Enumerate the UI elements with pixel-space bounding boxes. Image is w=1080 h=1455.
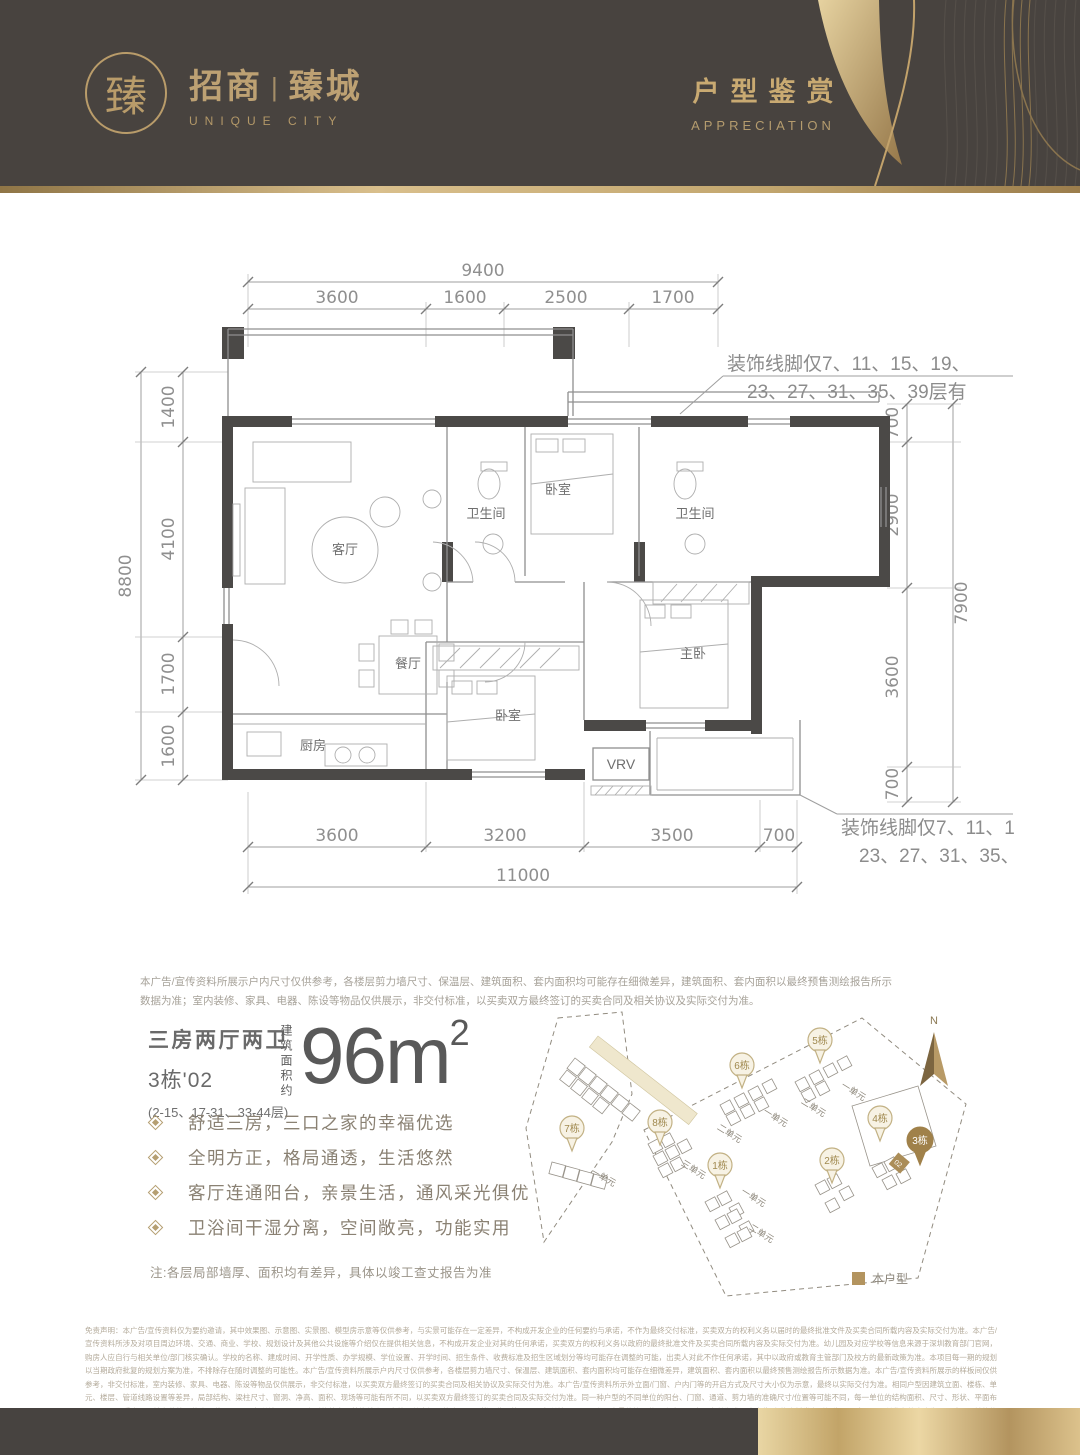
header: 臻 招商|臻城 UNIQUE CITY 户型鉴赏 APPRECIATION — [0, 0, 1080, 186]
feature-item: 全明方正，格局通透，生活悠然 — [150, 1147, 530, 1167]
molding-note-bottom-line1: 装饰线脚仅7、11、15、19、 — [841, 817, 1015, 839]
brand-logo: 臻 招商|臻城 UNIQUE CITY — [85, 52, 363, 134]
brand-name-right: 臻城 — [289, 68, 363, 106]
unit-label: 一单元 — [761, 1105, 790, 1129]
dim-left-seg: 1400 — [159, 385, 179, 428]
brand-seal-icon: 臻 — [85, 52, 167, 134]
feature-item: 客厅连通阳台，亲景生活，通风采光俱优 — [150, 1182, 530, 1202]
unit-label: 二单元 — [715, 1121, 744, 1145]
dim-left-total: 8800 — [116, 554, 136, 597]
feature-item: 舒适三房，三口之家的幸福优选 — [150, 1112, 530, 1132]
dim-right-total: 7900 — [952, 581, 972, 624]
svg-text:2栋: 2栋 — [824, 1154, 840, 1167]
area-superscript: 2 — [450, 1016, 470, 1050]
room-label-master: 主卧 — [680, 646, 706, 661]
svg-text:1栋: 1栋 — [712, 1159, 728, 1172]
room-label-bedroom2: 卧室 — [495, 708, 521, 723]
unit-type: 三房两厅两卫 — [148, 1024, 289, 1054]
unit-heading: 三房两厅两卫 3栋'02 (2-15、17-31、33-44层) — [148, 1024, 289, 1121]
molding-note-top-line1: 装饰线脚仅7、11、15、19、 — [727, 353, 971, 375]
molding-note-top: 装饰线脚仅7、11、15、19、 23、27、31、35、39层有 — [680, 353, 1013, 414]
dim-left-seg: 1600 — [159, 724, 179, 767]
floorplan-drawing: 9400 3600 1600 2500 1700 8800 1400 4100 … — [95, 252, 1015, 964]
gold-curve-line-right — [1012, 0, 1080, 170]
dim-left-seg: 4100 — [159, 517, 179, 560]
dim-right-seg: 3600 — [883, 655, 903, 698]
dim-right-seg: 700 — [883, 768, 903, 800]
gold-divider-line — [0, 186, 1080, 193]
unit-label: 一单元 — [839, 1079, 868, 1103]
diamond-bullet-icon — [148, 1219, 164, 1235]
feature-list: 舒适三房，三口之家的幸福优选 全明方正，格局通透，生活悠然 客厅连通阳台，亲景生… — [150, 1112, 530, 1252]
dim-top-seg: 2500 — [544, 288, 587, 308]
svg-text:3栋: 3栋 — [912, 1134, 928, 1147]
seal-character: 臻 — [105, 63, 147, 124]
pin-7: 7栋 — [560, 1116, 584, 1151]
brand-text: 招商|臻城 UNIQUE CITY — [189, 59, 363, 128]
dim-bottom-seg: 700 — [763, 826, 795, 846]
dim-top-seg: 3600 — [315, 288, 358, 308]
svg-text:6栋: 6栋 — [734, 1059, 750, 1072]
pin-4: 4栋 — [868, 1106, 892, 1141]
room-label-living: 客厅 — [332, 542, 358, 557]
diamond-bullet-icon — [148, 1184, 164, 1200]
bottom-bar-dark — [0, 1408, 758, 1455]
room-label-dining: 餐厅 — [395, 656, 421, 671]
plan-disclaimer: 本广告/宣传资料所展示户内尺寸仅供参考，各楼层剪力墙尺寸、保温层、建筑面积、套内… — [140, 973, 892, 1012]
room-label-kitchen: 厨房 — [300, 738, 326, 753]
pin-3-highlight: 3栋 — [907, 1127, 933, 1165]
diamond-bullet-icon — [148, 1114, 164, 1130]
siteplan-map: 02 一单元 三单元 二单元 一单元 二单元 一单元 一单元 二单元 7栋 8栋… — [520, 1010, 982, 1305]
room-label-bedroom1: 卧室 — [545, 482, 571, 497]
brand-divider: | — [263, 72, 289, 102]
area-value: 96m — [300, 1014, 450, 1098]
unit-label: 一单元 — [739, 1185, 768, 1209]
pin-2: 2栋 — [820, 1148, 844, 1183]
molding-note-top-line2: 23、27、31、35、39层有 — [747, 381, 967, 403]
room-label-bath2: 卫生间 — [675, 506, 714, 521]
title-en: APPRECIATION — [648, 118, 878, 133]
site-legend: 本户型 — [852, 1271, 908, 1286]
brand-name-left: 招商 — [189, 68, 263, 106]
unit-label: 二单元 — [747, 1221, 776, 1245]
north-arrow-icon: N — [920, 1015, 948, 1086]
legend-swatch — [852, 1272, 865, 1285]
gold-wave-pattern — [1004, 0, 1031, 186]
legend-label: 本户型 — [872, 1271, 908, 1286]
feature-text: 舒适三房，三口之家的幸福优选 — [188, 1110, 454, 1135]
poster-page: 臻 招商|臻城 UNIQUE CITY 户型鉴赏 APPRECIATION — [0, 0, 1080, 1455]
pin-5: 5栋 — [808, 1028, 832, 1063]
diamond-bullet-icon — [148, 1149, 164, 1165]
feature-text: 全明方正，格局通透，生活悠然 — [188, 1145, 454, 1170]
bottom-bar-gold — [758, 1408, 1080, 1455]
area-label: 建筑面积约 — [278, 1014, 295, 1110]
molding-note-bottom-line2: 23、27、31、35、39层有 — [859, 845, 1015, 867]
dim-bottom-seg: 3600 — [315, 826, 358, 846]
area-block: 建筑面积约 96m 2 — [278, 1014, 470, 1110]
dim-top-seg: 1600 — [443, 288, 486, 308]
feature-item: 卫浴间干湿分离，空间敞亮，功能实用 — [150, 1217, 530, 1237]
feature-text: 客厅连通阳台，亲景生活，通风采光俱优 — [188, 1180, 530, 1205]
room-label-vrv: VRV — [607, 756, 636, 772]
dim-top-seg: 1700 — [651, 288, 694, 308]
room-label-bath1: 卫生间 — [466, 506, 505, 521]
wave-pattern — [944, 0, 1077, 186]
dim-top-total: 9400 — [461, 261, 504, 281]
dim-bottom-seg: 3200 — [483, 826, 526, 846]
north-label: N — [930, 1015, 938, 1027]
site-road-strip — [589, 1036, 697, 1125]
dim-bottom-seg: 3500 — [650, 826, 693, 846]
svg-text:4栋: 4栋 — [872, 1112, 888, 1125]
brand-name: 招商|臻城 — [189, 59, 363, 108]
feature-text: 卫浴间干湿分离，空间敞亮，功能实用 — [188, 1215, 511, 1240]
svg-text:8栋: 8栋 — [652, 1116, 668, 1129]
brand-subtitle: UNIQUE CITY — [189, 114, 363, 128]
svg-text:5栋: 5栋 — [812, 1034, 828, 1047]
unit-number: 3栋'02 — [148, 1064, 289, 1094]
unit-label: 三单元 — [679, 1157, 708, 1181]
dim-left-seg: 1700 — [159, 652, 179, 695]
title-cn: 户型鉴赏 — [648, 70, 878, 109]
plan-note: 注:各层局部墙厚、面积均有差异，具体以竣工查丈报告为准 — [150, 1262, 492, 1281]
pin-6: 6栋 — [730, 1053, 754, 1088]
dim-bottom-total: 11000 — [496, 866, 550, 886]
molding-note-bottom: 装饰线脚仅7、11、15、19、 23、27、31、35、39层有 — [800, 795, 1015, 867]
pin-1: 1栋 — [708, 1153, 732, 1188]
page-title: 户型鉴赏 APPRECIATION — [648, 70, 878, 133]
svg-text:7栋: 7栋 — [564, 1122, 580, 1135]
